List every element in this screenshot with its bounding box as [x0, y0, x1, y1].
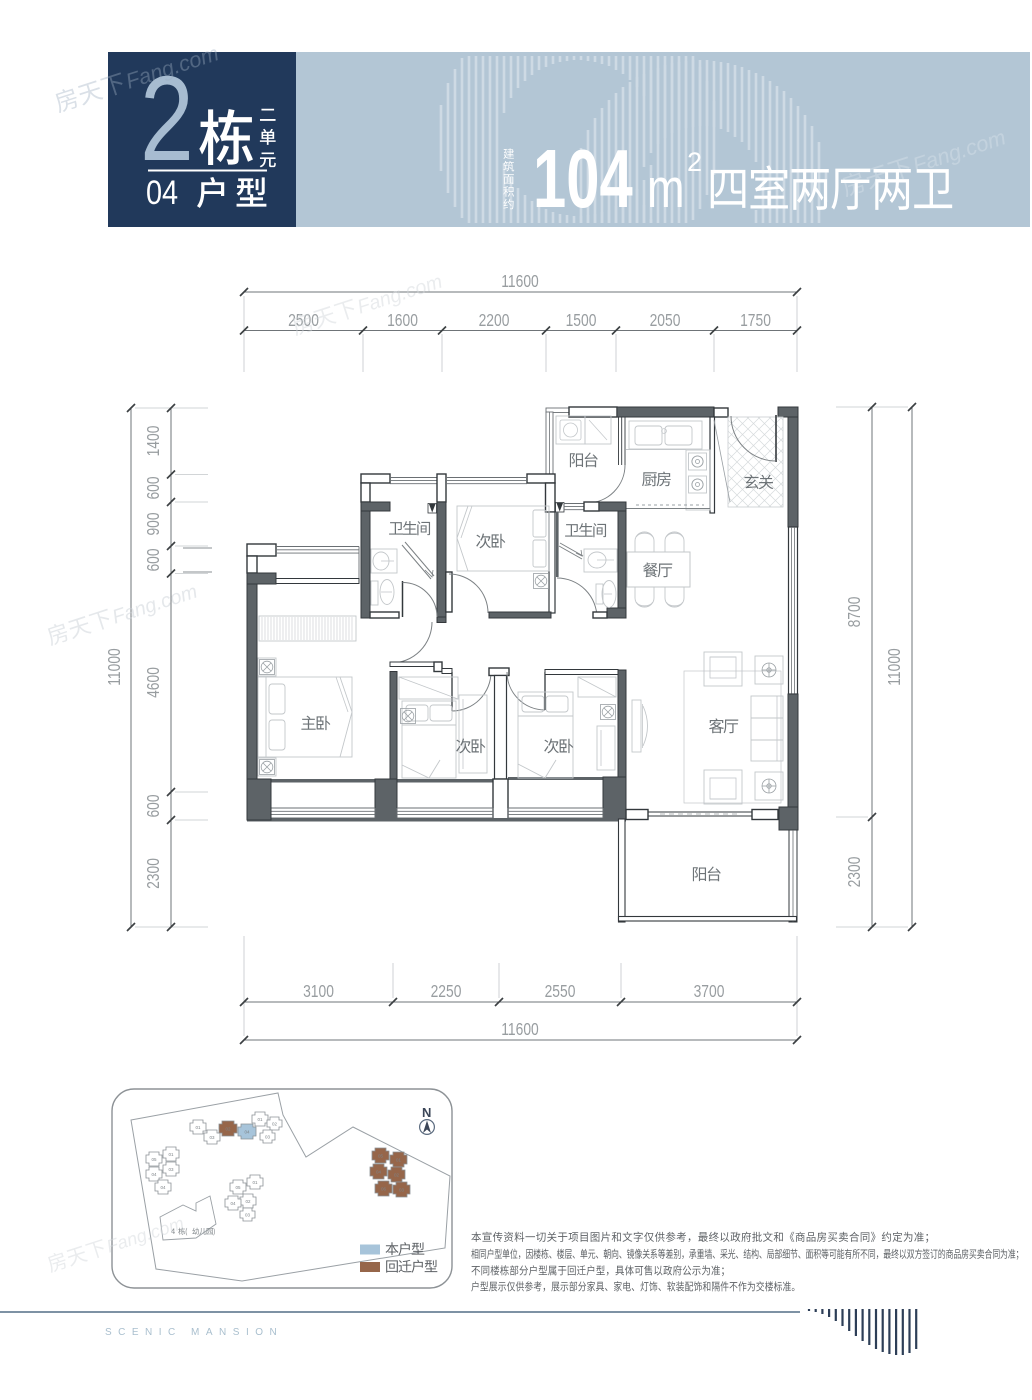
- svg-text:04: 04: [376, 1170, 382, 1175]
- svg-text:04: 04: [146, 173, 178, 212]
- svg-text:3700: 3700: [694, 981, 725, 1001]
- svg-text:04: 04: [244, 1130, 250, 1135]
- svg-text:01: 01: [168, 1152, 174, 1157]
- svg-text:02: 02: [245, 1199, 251, 1204]
- svg-text:1500: 1500: [566, 310, 597, 330]
- svg-text:01: 01: [252, 1180, 258, 1185]
- svg-text:03: 03: [209, 1135, 215, 1140]
- svg-text:02: 02: [225, 1127, 231, 1132]
- svg-text:Fang.com: Fang.com: [110, 581, 200, 629]
- svg-text:2200: 2200: [479, 310, 510, 330]
- svg-text:11000: 11000: [884, 648, 904, 686]
- svg-text:600: 600: [143, 794, 163, 817]
- svg-text:104: 104: [533, 134, 633, 226]
- svg-text:03: 03: [399, 1188, 405, 1193]
- svg-text:02: 02: [272, 1122, 278, 1127]
- svg-text:01: 01: [195, 1125, 201, 1130]
- svg-text:m: m: [647, 157, 685, 219]
- svg-text:01: 01: [257, 1117, 263, 1122]
- svg-text:05: 05: [235, 1185, 241, 1190]
- svg-text:06: 06: [381, 1187, 387, 1192]
- svg-text:03: 03: [265, 1135, 271, 1140]
- svg-text:01: 01: [396, 1158, 402, 1163]
- svg-text:04: 04: [151, 1172, 157, 1177]
- svg-text:600: 600: [143, 548, 163, 571]
- svg-text:1750: 1750: [740, 310, 771, 330]
- svg-text:04: 04: [230, 1201, 236, 1206]
- svg-text:4600: 4600: [143, 667, 163, 698]
- svg-text:2550: 2550: [545, 981, 576, 1001]
- svg-text:2050: 2050: [650, 310, 681, 330]
- svg-text:1600: 1600: [387, 310, 418, 330]
- svg-text:02: 02: [394, 1173, 400, 1178]
- svg-text:11600: 11600: [501, 1019, 539, 1039]
- svg-text:SCENIC MANSION: SCENIC MANSION: [105, 1327, 283, 1338]
- svg-text:05: 05: [151, 1157, 157, 1162]
- svg-text:N: N: [422, 1105, 431, 1120]
- svg-text:8700: 8700: [844, 597, 864, 628]
- svg-text:04: 04: [160, 1185, 166, 1190]
- svg-text:11600: 11600: [501, 271, 539, 291]
- svg-text:05: 05: [378, 1154, 384, 1159]
- svg-text:2300: 2300: [143, 858, 163, 889]
- svg-text:3100: 3100: [303, 981, 334, 1001]
- svg-text:2: 2: [687, 147, 702, 177]
- svg-text:600: 600: [143, 476, 163, 499]
- svg-text:03: 03: [245, 1213, 251, 1218]
- svg-text:03: 03: [168, 1167, 174, 1172]
- svg-text:900: 900: [143, 512, 163, 535]
- svg-text:11000: 11000: [104, 648, 124, 686]
- svg-text:2300: 2300: [844, 857, 864, 888]
- svg-text:2250: 2250: [431, 981, 462, 1001]
- svg-text:1400: 1400: [143, 426, 163, 457]
